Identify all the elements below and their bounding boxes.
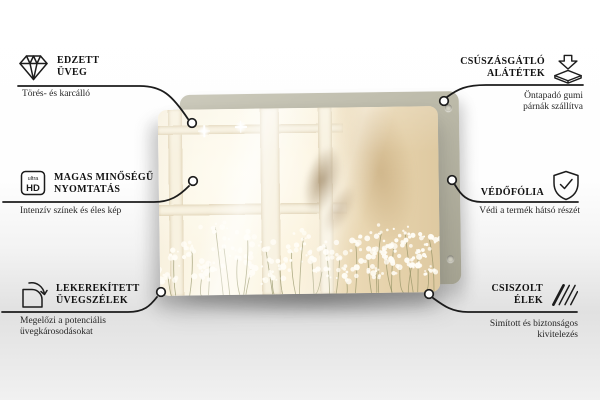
- subtitle-line: Védi a termék hátsó részét: [430, 206, 580, 217]
- ultra-hd-icon: ultra HD: [20, 170, 46, 196]
- rounded-corner-icon: [20, 280, 48, 308]
- title-line: VÉDŐFÓLIA: [481, 187, 544, 199]
- callout-header: CSÚSZÁSGÁTLÓ ALÁTÉTEK: [433, 54, 583, 85]
- callout-header: LEKEREKÍTETT ÜVEGSZÉLEK: [20, 280, 170, 308]
- title-line: CSISZOLT: [491, 283, 543, 295]
- subtitle-line: Törés- és karcálló: [22, 89, 150, 100]
- callout-header: ultra HD MAGAS MINŐSÉGŰ NYOMTATÁS: [20, 170, 170, 196]
- title-line: CSÚSZÁSGÁTLÓ: [460, 56, 545, 68]
- callout-title: CSÚSZÁSGÁTLÓ ALÁTÉTEK: [460, 56, 545, 79]
- diamond-icon: [18, 54, 49, 81]
- sparkle-icon: [233, 120, 247, 134]
- callout-subtitle: Öntapadó gumi párnák szállítva: [433, 91, 583, 112]
- callout-rounded-glass-edges: LEKEREKÍTETT ÜVEGSZÉLEK Megelőzi a poten…: [20, 280, 170, 337]
- callout-header: VÉDŐFÓLIA: [430, 170, 580, 201]
- subtitle-line: Intenzív színek és éles kép: [20, 206, 170, 217]
- window-scene: [158, 106, 441, 296]
- callout-tempered-glass: EDZETT ÜVEG Törés- és karcálló: [18, 54, 150, 100]
- callout-title: LEKEREKÍTETT ÜVEGSZÉLEK: [56, 283, 140, 306]
- title-line: MAGAS MINŐSÉGŰ: [54, 172, 153, 184]
- subtitle-line: párnák szállítva: [433, 102, 583, 113]
- pad-arrow-icon: [553, 54, 583, 85]
- callout-high-quality-print: ultra HD MAGAS MINŐSÉGŰ NYOMTATÁS Intenz…: [20, 170, 170, 217]
- subtitle-line: üvegkárosodásokat: [20, 327, 170, 338]
- subtitle-line: Megelőzi a potenciális: [20, 316, 170, 327]
- mounting-hole: [447, 255, 454, 262]
- title-line: EDZETT: [57, 55, 99, 67]
- callout-subtitle: Intenzív színek és éles kép: [20, 206, 170, 217]
- callout-subtitle: Törés- és karcálló: [22, 89, 150, 100]
- callout-anti-slip-pads: CSÚSZÁSGÁTLÓ ALÁTÉTEK Öntapadó gumi párn…: [433, 54, 583, 112]
- callout-subtitle: Megelőzi a potenciális üvegkárosodásokat: [20, 316, 170, 337]
- callout-protective-film: VÉDŐFÓLIA Védi a termék hátsó részét: [430, 170, 580, 217]
- callout-title: CSISZOLT ÉLEK: [491, 283, 543, 306]
- ultra-hd-icon-small-label: ultra: [28, 176, 40, 182]
- title-line: ÉLEK: [491, 295, 543, 307]
- callout-header: EDZETT ÜVEG: [18, 54, 150, 81]
- product-infographic: EDZETT ÜVEG Törés- és karcálló CSÚSZÁSGÁ…: [0, 0, 600, 400]
- subtitle-line: Öntapadó gumi: [433, 91, 583, 102]
- callout-title: EDZETT ÜVEG: [57, 55, 99, 78]
- title-line: ALÁTÉTEK: [460, 68, 545, 80]
- title-line: ÜVEGSZÉLEK: [56, 295, 140, 307]
- title-line: NYOMTATÁS: [54, 184, 153, 196]
- title-line: ÜVEG: [57, 67, 99, 79]
- glass-board: [158, 106, 441, 296]
- callout-polished-edges: CSISZOLT ÉLEK Simított és biztonságos ki…: [428, 280, 578, 340]
- sparkle-icon: [197, 124, 211, 138]
- subtitle-line: Simított és biztonságos: [428, 319, 578, 330]
- callout-title: VÉDŐFÓLIA: [481, 187, 544, 199]
- hatched-edge-icon: [551, 283, 578, 307]
- callout-header: CSISZOLT ÉLEK: [428, 280, 578, 307]
- subtitle-line: kivitelezés: [428, 330, 578, 341]
- ultra-hd-icon-big-label: HD: [26, 183, 40, 194]
- callout-subtitle: Simított és biztonságos kivitelezés: [428, 319, 578, 340]
- callout-subtitle: Védi a termék hátsó részét: [430, 206, 580, 217]
- callout-title: MAGAS MINŐSÉGŰ NYOMTATÁS: [54, 172, 153, 195]
- title-line: LEKEREKÍTETT: [56, 283, 140, 295]
- shield-check-icon: [552, 170, 580, 201]
